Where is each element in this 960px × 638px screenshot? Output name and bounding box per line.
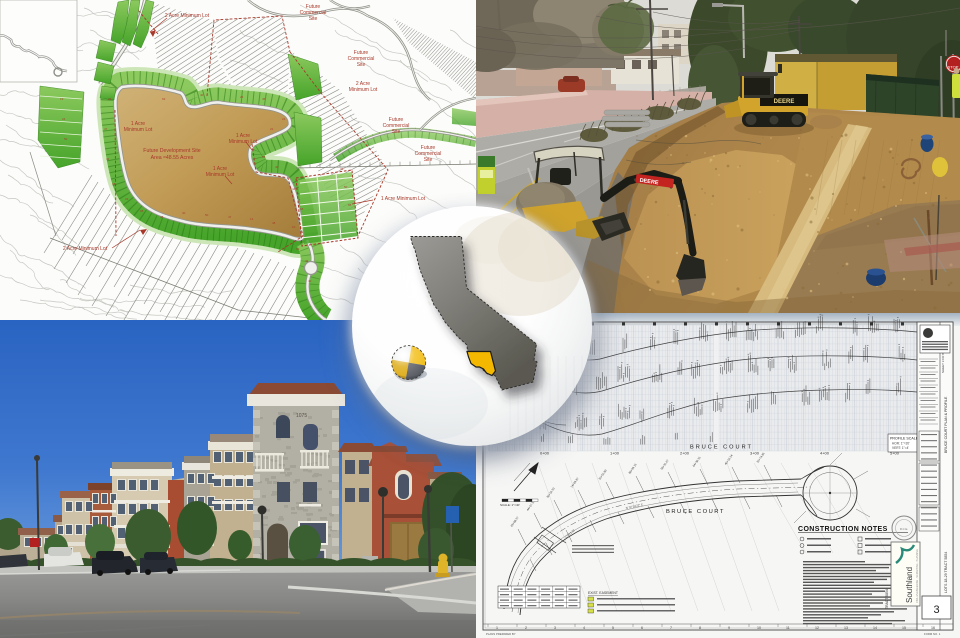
svg-text:18: 18	[112, 182, 116, 186]
svg-text:SCALE: 1"=40': SCALE: 1"=40'	[500, 503, 520, 507]
svg-text:24: 24	[62, 117, 66, 121]
svg-text:1075: 1075	[296, 413, 307, 419]
svg-text:10: 10	[292, 225, 296, 229]
svg-text:40: 40	[275, 165, 279, 169]
svg-text:Area ≈48.55 Acres: Area ≈48.55 Acres	[151, 155, 194, 161]
svg-text:44: 44	[292, 187, 296, 191]
svg-text:40: 40	[182, 211, 186, 215]
svg-text:11: 11	[786, 626, 790, 630]
svg-text:45: 45	[262, 97, 266, 101]
svg-text:44: 44	[106, 157, 110, 161]
svg-text:63: 63	[162, 97, 166, 101]
svg-text:R.C.E.: R.C.E.	[900, 527, 908, 531]
svg-text:68: 68	[140, 209, 144, 213]
svg-text:EXIST. EASEMENT: EXIST. EASEMENT	[588, 591, 618, 595]
svg-text:Minimum Lot: Minimum Lot	[206, 172, 235, 178]
svg-text:13: 13	[844, 626, 848, 630]
svg-text:24: 24	[282, 117, 286, 121]
svg-text:10: 10	[757, 626, 761, 630]
svg-text:19: 19	[60, 97, 64, 101]
svg-text:BRUCE COURT PLAN & PROFILE: BRUCE COURT PLAN & PROFILE	[944, 396, 948, 453]
svg-text:15: 15	[902, 626, 906, 630]
svg-text:25: 25	[108, 97, 112, 101]
svg-text:DEERE: DEERE	[774, 99, 795, 105]
svg-text:50: 50	[64, 137, 68, 141]
svg-text:45: 45	[305, 259, 309, 263]
svg-text:VERT: 1"=4': VERT: 1"=4'	[892, 446, 909, 450]
svg-text:47: 47	[104, 127, 108, 131]
svg-text:55: 55	[262, 155, 266, 159]
svg-text:50: 50	[344, 185, 348, 189]
svg-text:BRUCE COURT: BRUCE COURT	[666, 509, 725, 515]
svg-text:6: 6	[641, 626, 643, 630]
svg-text:8: 8	[699, 626, 701, 630]
svg-text:3: 3	[933, 604, 939, 616]
svg-text:50: 50	[205, 213, 209, 217]
svg-text:Site: Site	[424, 157, 433, 163]
svg-text:Minimum Lot: Minimum Lot	[229, 139, 258, 145]
svg-text:22: 22	[270, 127, 274, 131]
svg-text:9: 9	[728, 626, 730, 630]
svg-text:Minimum Lot: Minimum Lot	[124, 127, 153, 133]
svg-text:47: 47	[228, 215, 232, 219]
svg-text:HOR: 1"=20': HOR: 1"=20'	[892, 442, 910, 446]
svg-text:68: 68	[300, 207, 304, 211]
svg-text:35: 35	[340, 167, 344, 171]
svg-text:2 Acre Minimum Lot: 2 Acre Minimum Lot	[63, 246, 108, 252]
svg-text:BRUCE COURT: BRUCE COURT	[690, 445, 753, 451]
svg-text:Future Development Site: Future Development Site	[143, 148, 200, 154]
svg-text:14: 14	[873, 626, 877, 630]
svg-text:40: 40	[200, 93, 204, 97]
svg-text:PLANS PREPARED BY: PLANS PREPARED BY	[486, 632, 516, 636]
svg-text:40: 40	[308, 279, 312, 283]
svg-text:4: 4	[583, 626, 585, 630]
svg-text:7: 7	[670, 626, 672, 630]
svg-text:Minimum Lot: Minimum Lot	[349, 87, 378, 93]
svg-text:14: 14	[250, 217, 254, 221]
svg-text:12: 12	[815, 626, 819, 630]
svg-text:CONSTRUCTION NOTES: CONSTRUCTION NOTES	[798, 526, 888, 533]
svg-text:48: 48	[160, 215, 164, 219]
svg-text:PROFILE SCALE: PROFILE SCALE	[890, 437, 919, 441]
svg-text:TRACT 5854: TRACT 5854	[885, 589, 889, 609]
svg-text:Site: Site	[392, 129, 401, 135]
svg-text:FORM NO. 1: FORM NO. 1	[924, 632, 941, 636]
svg-text:SHEET 3 OF 8: SHEET 3 OF 8	[941, 353, 945, 373]
svg-text:5: 5	[612, 626, 614, 630]
svg-text:3+00: 3+00	[750, 451, 760, 456]
svg-text:LOTS 18-29 TRACT 5854: LOTS 18-29 TRACT 5854	[944, 552, 948, 593]
svg-text:Southland: Southland	[905, 567, 914, 603]
svg-text:2+00: 2+00	[680, 451, 690, 456]
svg-text:1: 1	[496, 626, 498, 630]
svg-text:3: 3	[554, 626, 556, 630]
svg-text:2: 2	[525, 626, 527, 630]
svg-text:4+00: 4+00	[820, 451, 830, 456]
svg-text:2 Acre Minimum Lot: 2 Acre Minimum Lot	[165, 13, 210, 19]
svg-text:CIVIL ENGINEERING · SURVEYING: CIVIL ENGINEERING · SURVEYING · PLANNING	[916, 549, 919, 603]
svg-text:16: 16	[931, 626, 935, 630]
svg-text:Site: Site	[357, 62, 366, 68]
svg-text:26: 26	[240, 95, 244, 99]
svg-text:33: 33	[125, 197, 129, 201]
svg-text:48: 48	[272, 221, 276, 225]
svg-text:Site: Site	[309, 16, 318, 22]
svg-text:1+00: 1+00	[610, 451, 620, 456]
svg-text:63: 63	[296, 247, 300, 251]
